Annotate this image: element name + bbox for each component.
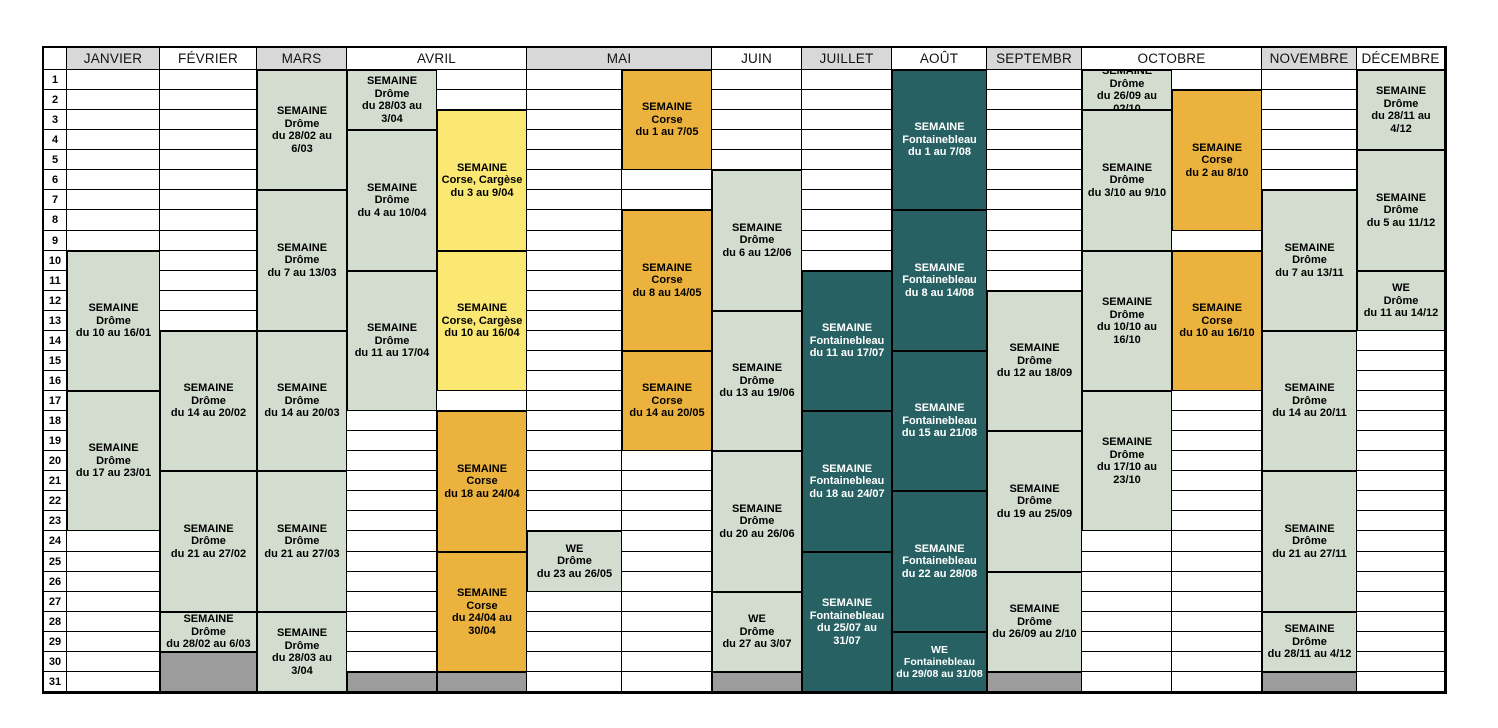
event-we-drome-du-11-au-14-12[interactable]: WEDrômedu 11 au 14/12 [1357,271,1445,331]
event-text-line: Drôme [96,455,131,468]
calendar-cell [1262,110,1357,130]
calendar-cell [1357,652,1445,672]
calendar-cell [1357,351,1445,371]
event-text-line: du 17/10 au 23/10 [1085,461,1169,486]
corner-cell [44,48,67,70]
calendar-cell [67,572,160,592]
calendar-cell [160,210,257,231]
day-label-4: 4 [44,130,67,150]
calendar-cell [1262,130,1357,150]
event-text-line: SEMAINE [1192,142,1242,155]
event-text-line: SEMAINE [642,262,692,275]
event-text-line: SEMAINE [1192,302,1242,315]
empty-days-filler [437,672,527,692]
calendar-cell [527,451,622,471]
calendar-cell [160,90,257,110]
calendar-cell [1082,531,1172,552]
calendar-cell [347,612,437,632]
calendar-cell [527,632,622,652]
empty-days-filler [1262,672,1357,692]
event-semaine-corse-cargese-du-10-au-16-04[interactable]: SEMAINECorse, Cargèsedu 10 au 16/04 [437,251,527,391]
event-text-line: Drôme [375,194,410,207]
day-label-8: 8 [44,210,67,231]
event-text-line: Drôme [1110,78,1145,91]
calendar-cell [987,271,1082,291]
calendar-cell [1262,90,1357,110]
event-semaine-drome-du-21-au-27-02[interactable]: SEMAINEDrômedu 21 au 27/02 [160,471,257,612]
event-text-line: Fontainebleau [902,415,977,428]
event-text-line: Drôme [740,626,775,639]
calendar-cell [712,90,802,110]
calendar-cell [622,612,712,632]
event-text-line: Drôme [1110,309,1145,322]
event-semaine-drome-du-6-au-12-06[interactable]: SEMAINEDrômedu 6 au 12/06 [712,170,802,311]
event-we-drome-du-23-au-26-05[interactable]: WEDrômedu 23 au 26/05 [527,531,622,592]
calendar-cell [160,190,257,210]
event-semaine-drome-du-14-au-20-11[interactable]: SEMAINEDrômedu 14 au 20/11 [1262,331,1357,471]
event-semaine-corse-du-10-au-16-10[interactable]: SEMAINECorsedu 10 au 16/10 [1172,251,1262,391]
calendar-cell [160,130,257,150]
event-text-line: Drôme [740,515,775,528]
event-semaine-drome-du-3-10-au-9-10[interactable]: SEMAINEDrômedu 3/10 au 9/10 [1082,110,1172,251]
event-text-line: du 3/10 au 9/10 [1088,187,1166,200]
event-semaine-fontainebleau-du-8-au-14-08[interactable]: SEMAINEFontainebleaudu 8 au 14/08 [892,210,987,351]
event-text-line: du 2 au 8/10 [1186,167,1249,180]
calendar-cell [622,471,712,491]
calendar-cell [67,632,160,652]
day-label-6: 6 [44,170,67,190]
event-semaine-fontainebleau-du-25-07-au-31-07[interactable]: SEMAINEFontainebleaudu 25/07 au 31/07 [802,552,892,692]
calendar-cell [347,471,437,491]
calendar-cell [802,110,892,130]
calendar-cell [1357,491,1445,511]
event-semaine-drome-du-7-au-13-11[interactable]: SEMAINEDrômedu 7 au 13/11 [1262,190,1357,331]
event-text-line: SEMAINE [822,322,872,335]
day-label-3: 3 [44,110,67,130]
empty-days-filler [712,672,802,692]
day-label-12: 12 [44,291,67,311]
calendar-cell [1172,451,1262,471]
calendar-cell [527,411,622,431]
event-text-line: du 1 au 7/08 [908,146,971,159]
calendar-cell [987,190,1082,210]
event-text-line: du 10 au 16/10 [1179,327,1254,340]
event-semaine-drome-du-10-au-16-01[interactable]: SEMAINEDrômedu 10 au 16/01 [67,251,160,391]
calendar-cell [67,150,160,170]
event-text-line: WE Fontainebleau [895,644,984,668]
calendar-cell [347,511,437,531]
event-text-line: Drôme [1384,295,1419,308]
event-text-line: du 28/03 au 3/04 [350,100,434,125]
calendar-cell [802,210,892,231]
day-label-20: 20 [44,451,67,471]
calendar-cell [67,531,160,552]
calendar-cell [527,612,622,632]
calendar-cell [527,271,622,291]
event-text-line: du 1 au 7/05 [636,126,699,139]
event-text-line: du 7 au 13/11 [1275,267,1343,280]
event-text-line: du 29/08 au 31/08 [896,668,982,680]
calendar-cell [347,572,437,592]
calendar-cell [1172,652,1262,672]
year-planner-calendar: JANVIERFÉVRIERMARSAVRILMAIJUINJUILLETAOÛ… [0,0,1498,728]
calendar-cell [527,90,622,110]
calendar-cell [527,130,622,150]
calendar-cell [160,291,257,311]
event-semaine-fontainebleau-du-1-au-7-08[interactable]: SEMAINEFontainebleaudu 1 au 7/08 [892,70,987,210]
event-text-line: Drôme [1292,395,1327,408]
event-semaine-drome-du-7-au-13-03[interactable]: SEMAINEDrômedu 7 au 13/03 [257,190,347,331]
event-semaine-drome-du-5-au-11-12[interactable]: SEMAINEDrômedu 5 au 11/12 [1357,150,1445,271]
calendar-cell [1357,612,1445,632]
event-text-line: SEMAINE [183,613,233,626]
calendar-cell [67,110,160,130]
month-header-novembre: NOVEMBRE [1262,48,1357,70]
day-label-10: 10 [44,251,67,271]
calendar-cell [1082,632,1172,652]
event-semaine-drome-du-28-02-au-6-03[interactable]: SEMAINEDrômedu 28/02 au 6/03 [160,612,257,652]
event-text-line: du 3 au 9/04 [451,187,514,200]
event-text-line: Fontainebleau [902,555,977,568]
event-semaine-drome-du-21-au-27-11[interactable]: SEMAINEDrômedu 21 au 27/11 [1262,471,1357,612]
calendar-cell [802,231,892,251]
event-semaine-corse-du-1-au-7-05[interactable]: SEMAINECorsedu 1 au 7/05 [622,70,712,170]
event-text-line: du 23 au 26/05 [537,568,612,581]
event-text-line: du 20 au 26/06 [719,528,794,541]
calendar-cell [347,552,437,572]
event-text-line: SEMAINE [914,262,964,275]
calendar-cell [1357,371,1445,391]
event-text-line: Corse [466,475,497,488]
event-text-line: SEMAINE [1376,85,1426,98]
calendar-cell [527,391,622,411]
event-text-line: du 14 au 20/03 [264,407,339,420]
event-semaine-drome-du-26-09-au-2-10[interactable]: SEMAINEDrômedu 26/09 au 2/10 [987,572,1082,672]
month-header-janvier: JANVIER [67,48,160,70]
calendar-cell [1172,552,1262,572]
calendar-cell [802,170,892,190]
event-semaine-drome-du-19-au-25-09[interactable]: SEMAINEDrômedu 19 au 25/09 [987,431,1082,572]
calendar-cell [1357,411,1445,431]
calendar-cell [987,210,1082,231]
calendar-cell [527,331,622,351]
event-text-line: Drôme [1292,535,1327,548]
day-label-2: 2 [44,90,67,110]
event-text-line: SEMAINE [277,627,327,640]
calendar-cell [527,471,622,491]
event-text-line: SEMAINE [457,302,507,315]
event-text-line: WE [566,543,584,556]
calendar-cell [1172,592,1262,612]
calendar-cell [527,150,622,170]
calendar-cell [1357,632,1445,652]
event-semaine-drome-du-28-03-au-3-04[interactable]: SEMAINEDrômedu 28/03 au 3/04 [347,70,437,130]
event-text-line: du 15 au 21/08 [902,427,977,440]
calendar-cell [1082,612,1172,632]
event-semaine-drome-du-26-09-au-02-10[interactable]: SEMAINEDrômedu 26/09 au 02/10 [1082,70,1172,110]
event-text-line: SEMAINE [277,523,327,536]
calendar-cell [527,170,622,190]
calendar-cell [347,632,437,652]
event-text-line: Drôme [1110,449,1145,462]
event-semaine-drome-du-28-02-au-6-03[interactable]: SEMAINEDrômedu 28/02 au 6/03 [257,70,347,190]
calendar-cell [802,90,892,110]
event-semaine-corse-du-18-au-24-04[interactable]: SEMAINECorsedu 18 au 24/04 [437,411,527,552]
calendar-cell [347,431,437,451]
event-text-line: SEMAINE [88,302,138,315]
event-text-line: Corse [651,274,682,287]
calendar-cell [347,491,437,511]
event-text-line: Drôme [1292,254,1327,267]
event-text-line: SEMAINE [914,402,964,415]
event-text-line: du 28/03 au 3/04 [260,652,344,677]
event-text-line: SEMAINE [1284,623,1334,636]
calendar-cell [160,110,257,130]
event-text-line: SEMAINE [457,162,507,175]
calendar-cell [527,592,622,612]
event-text-line: du 22 au 28/08 [902,568,977,581]
calendar-cell [67,231,160,251]
event-text-line: Drôme [285,254,320,267]
day-label-18: 18 [44,411,67,431]
event-we-fontainebleau-du-29-08-au-31-08[interactable]: WE Fontainebleaudu 29/08 au 31/08 [892,632,987,692]
event-text-line: SEMAINE [642,382,692,395]
month-header-mai: MAI [527,48,712,70]
month-header-fevrier: FÉVRIER [160,48,257,70]
event-semaine-drome-du-17-10-au-23-10[interactable]: SEMAINEDrômedu 17/10 au 23/10 [1082,391,1172,531]
calendar-cell [987,251,1082,271]
calendar-cell [987,130,1082,150]
event-text-line: SEMAINE [88,442,138,455]
calendar-cell [1172,411,1262,431]
calendar-cell [622,451,712,471]
calendar-cell [527,291,622,311]
calendar-cell [1357,511,1445,531]
event-text-line: Corse, Cargèse [442,174,523,187]
day-label-16: 16 [44,371,67,391]
calendar-cell [527,110,622,130]
event-text-line: du 8 au 14/08 [905,287,974,300]
event-text-line: du 21 au 27/11 [1272,548,1347,561]
event-text-line: Fontainebleau [902,274,977,287]
event-text-line: SEMAINE [277,242,327,255]
calendar-cell [160,271,257,291]
event-semaine-fontainebleau-du-22-au-28-08[interactable]: SEMAINEFontainebleaudu 22 au 28/08 [892,491,987,632]
event-semaine-drome-du-20-au-26-06[interactable]: SEMAINEDrômedu 20 au 26/06 [712,451,802,592]
calendar-cell [347,451,437,471]
calendar-cell [527,491,622,511]
day-label-31: 31 [44,672,67,692]
event-text-line: WE [748,613,766,626]
calendar-cell [67,170,160,190]
event-semaine-corse-du-2-au-8-10[interactable]: SEMAINECorsedu 2 au 8/10 [1172,90,1262,231]
calendar-cell [1357,572,1445,592]
event-text-line: SEMAINE [277,382,327,395]
empty-days-filler [160,652,257,692]
day-label-24: 24 [44,531,67,552]
calendar-cell [802,251,892,271]
event-semaine-drome-du-14-au-20-03[interactable]: SEMAINEDrômedu 14 au 20/03 [257,331,347,471]
calendar-cell [622,170,712,190]
calendar-cell [527,70,622,90]
event-text-line: SEMAINE [1376,192,1426,205]
event-text-line: Drôme [285,535,320,548]
event-semaine-drome-du-14-au-20-02[interactable]: SEMAINEDrômedu 14 au 20/02 [160,331,257,471]
event-text-line: du 21 au 27/03 [264,548,339,561]
calendar-cell [622,672,712,692]
calendar-cell [67,652,160,672]
event-text-line: Drôme [1110,174,1145,187]
calendar-cell [622,652,712,672]
day-label-27: 27 [44,592,67,612]
calendar-cell [67,130,160,150]
calendar-cell [622,572,712,592]
event-text-line: du 28/02 au 6/03 [166,638,250,651]
event-semaine-drome-du-4-au-10-04[interactable]: SEMAINEDrômedu 4 au 10/04 [347,130,437,271]
event-text-line: Corse [651,114,682,127]
event-text-line: SEMAINE [642,101,692,114]
calendar-cell [712,130,802,150]
event-semaine-drome-du-28-03-au-3-04[interactable]: SEMAINEDrômedu 28/03 au 3/04 [257,612,347,692]
calendar-cell [1082,572,1172,592]
event-text-line: SEMAINE [822,597,872,610]
event-text-line: Drôme [1017,355,1052,368]
event-text-line: du 18 au 24/04 [444,488,519,501]
calendar-cell [712,150,802,170]
calendar-cell [712,110,802,130]
day-label-26: 26 [44,572,67,592]
calendar-cell [527,672,622,692]
calendar-cell [987,150,1082,170]
calendar-cell [1172,531,1262,552]
event-semaine-drome-du-17-au-23-01[interactable]: SEMAINEDrômedu 17 au 23/01 [67,391,160,531]
calendar-cell [1172,431,1262,451]
calendar-cell [1357,672,1445,692]
calendar-cell [437,70,527,90]
calendar-cell [527,652,622,672]
calendar-cell [437,90,527,110]
calendar-cell [987,70,1082,90]
event-text-line: SEMAINE [457,463,507,476]
event-semaine-corse-du-14-au-20-05[interactable]: SEMAINECorsedu 14 au 20/05 [622,351,712,451]
calendar-cell [622,190,712,210]
month-header-juillet: JUILLET [802,48,892,70]
day-label-1: 1 [44,70,67,90]
event-text-line: Drôme [1384,98,1419,111]
event-text-line: SEMAINE [914,543,964,556]
calendar-cell [527,431,622,451]
event-text-line: Corse [1201,315,1232,328]
day-label-30: 30 [44,652,67,672]
month-header-decembre: DÉCEMBRE [1357,48,1445,70]
event-text-line: SEMAINE [367,182,417,195]
month-header-octobre: OCTOBRE [1082,48,1262,70]
calendar-cell [1082,552,1172,572]
day-label-25: 25 [44,552,67,572]
calendar-grid: JANVIERFÉVRIERMARSAVRILMAIJUINJUILLETAOÛ… [42,46,1447,694]
event-text-line: Fontainebleau [810,610,885,623]
event-text-line: du 4 au 10/04 [357,207,426,220]
event-text-line: SEMAINE [732,362,782,375]
event-text-line: du 28/02 au 6/03 [260,130,344,155]
event-semaine-drome-du-13-au-19-06[interactable]: SEMAINEDrômedu 13 au 19/06 [712,311,802,451]
day-label-17: 17 [44,391,67,411]
calendar-cell [987,90,1082,110]
event-semaine-fontainebleau-du-15-au-21-08[interactable]: SEMAINEFontainebleaudu 15 au 21/08 [892,351,987,491]
event-text-line: du 14 au 20/02 [171,407,246,420]
event-semaine-drome-du-21-au-27-03[interactable]: SEMAINEDrômedu 21 au 27/03 [257,471,347,612]
event-text-line: Drôme [1384,204,1419,217]
event-text-line: Drôme [191,395,226,408]
event-semaine-fontainebleau-du-18-au-24-07[interactable]: SEMAINEFontainebleaudu 18 au 24/07 [802,411,892,552]
calendar-cell [712,70,802,90]
calendar-cell [67,552,160,572]
event-we-drome-du-27-au-3-07[interactable]: WEDrômedu 27 au 3/07 [712,592,802,672]
calendar-cell [1357,471,1445,491]
event-semaine-drome-du-11-au-17-04[interactable]: SEMAINEDrômedu 11 au 17/04 [347,271,437,411]
day-label-5: 5 [44,150,67,170]
event-text-line: SEMAINE [1102,436,1152,449]
calendar-cell [527,251,622,271]
event-text-line: du 21 au 27/02 [171,548,246,561]
day-label-13: 13 [44,311,67,331]
calendar-cell [1357,391,1445,411]
event-semaine-drome-du-28-11-au-4-12[interactable]: SEMAINEDrômedu 28/11 au 4/12 [1357,70,1445,150]
calendar-cell [160,150,257,170]
event-text-line: du 11 au 17/07 [810,347,885,360]
calendar-cell [622,632,712,652]
event-text-line: Fontainebleau [902,134,977,147]
calendar-cell [1262,170,1357,190]
event-text-line: SEMAINE [1284,242,1334,255]
event-text-line: du 10 au 16/01 [76,327,151,340]
event-text-line: du 5 au 11/12 [1367,217,1435,230]
event-semaine-drome-du-10-10-au-16-10[interactable]: SEMAINEDrômedu 10/10 au 16/10 [1082,251,1172,391]
calendar-cell [160,311,257,331]
event-text-line: du 17 au 23/01 [76,467,151,480]
calendar-cell [160,231,257,251]
event-semaine-corse-du-8-au-14-05[interactable]: SEMAINECorsedu 8 au 14/05 [622,210,712,351]
day-label-28: 28 [44,612,67,632]
event-text-line: du 11 au 17/04 [355,347,430,360]
event-text-line: SEMAINE [1009,342,1059,355]
event-text-line: Corse [466,600,497,613]
event-text-line: SEMAINE [367,75,417,88]
event-semaine-drome-du-28-11-au-4-12[interactable]: SEMAINEDrômedu 28/11 au 4/12 [1262,612,1357,672]
event-text-line: Drôme [1017,616,1052,629]
event-semaine-drome-du-12-au-18-09[interactable]: SEMAINEDrômedu 12 au 18/09 [987,291,1082,431]
event-semaine-fontainebleau-du-11-au-17-07[interactable]: SEMAINEFontainebleaudu 11 au 17/07 [802,271,892,411]
month-header-avril: AVRIL [347,48,527,70]
event-text-line: Drôme [191,626,226,639]
day-label-15: 15 [44,351,67,371]
calendar-cell [1172,491,1262,511]
calendar-cell [802,70,892,90]
month-header-aout: AOÛT [892,48,987,70]
calendar-cell [622,491,712,511]
calendar-cell [622,552,712,572]
event-text-line: SEMAINE [183,523,233,536]
event-semaine-corse-cargese-du-3-au-9-04[interactable]: SEMAINECorse, Cargèsedu 3 au 9/04 [437,110,527,251]
day-label-29: 29 [44,632,67,652]
event-text-line: du 24/04 au 30/04 [440,612,524,637]
calendar-cell [1082,652,1172,672]
calendar-cell [437,391,527,411]
event-text-line: du 27 au 3/07 [722,638,791,651]
calendar-cell [1172,231,1262,251]
event-semaine-corse-du-24-04-au-30-04[interactable]: SEMAINECorsedu 24/04 au 30/04 [437,552,527,672]
calendar-cell [67,612,160,632]
